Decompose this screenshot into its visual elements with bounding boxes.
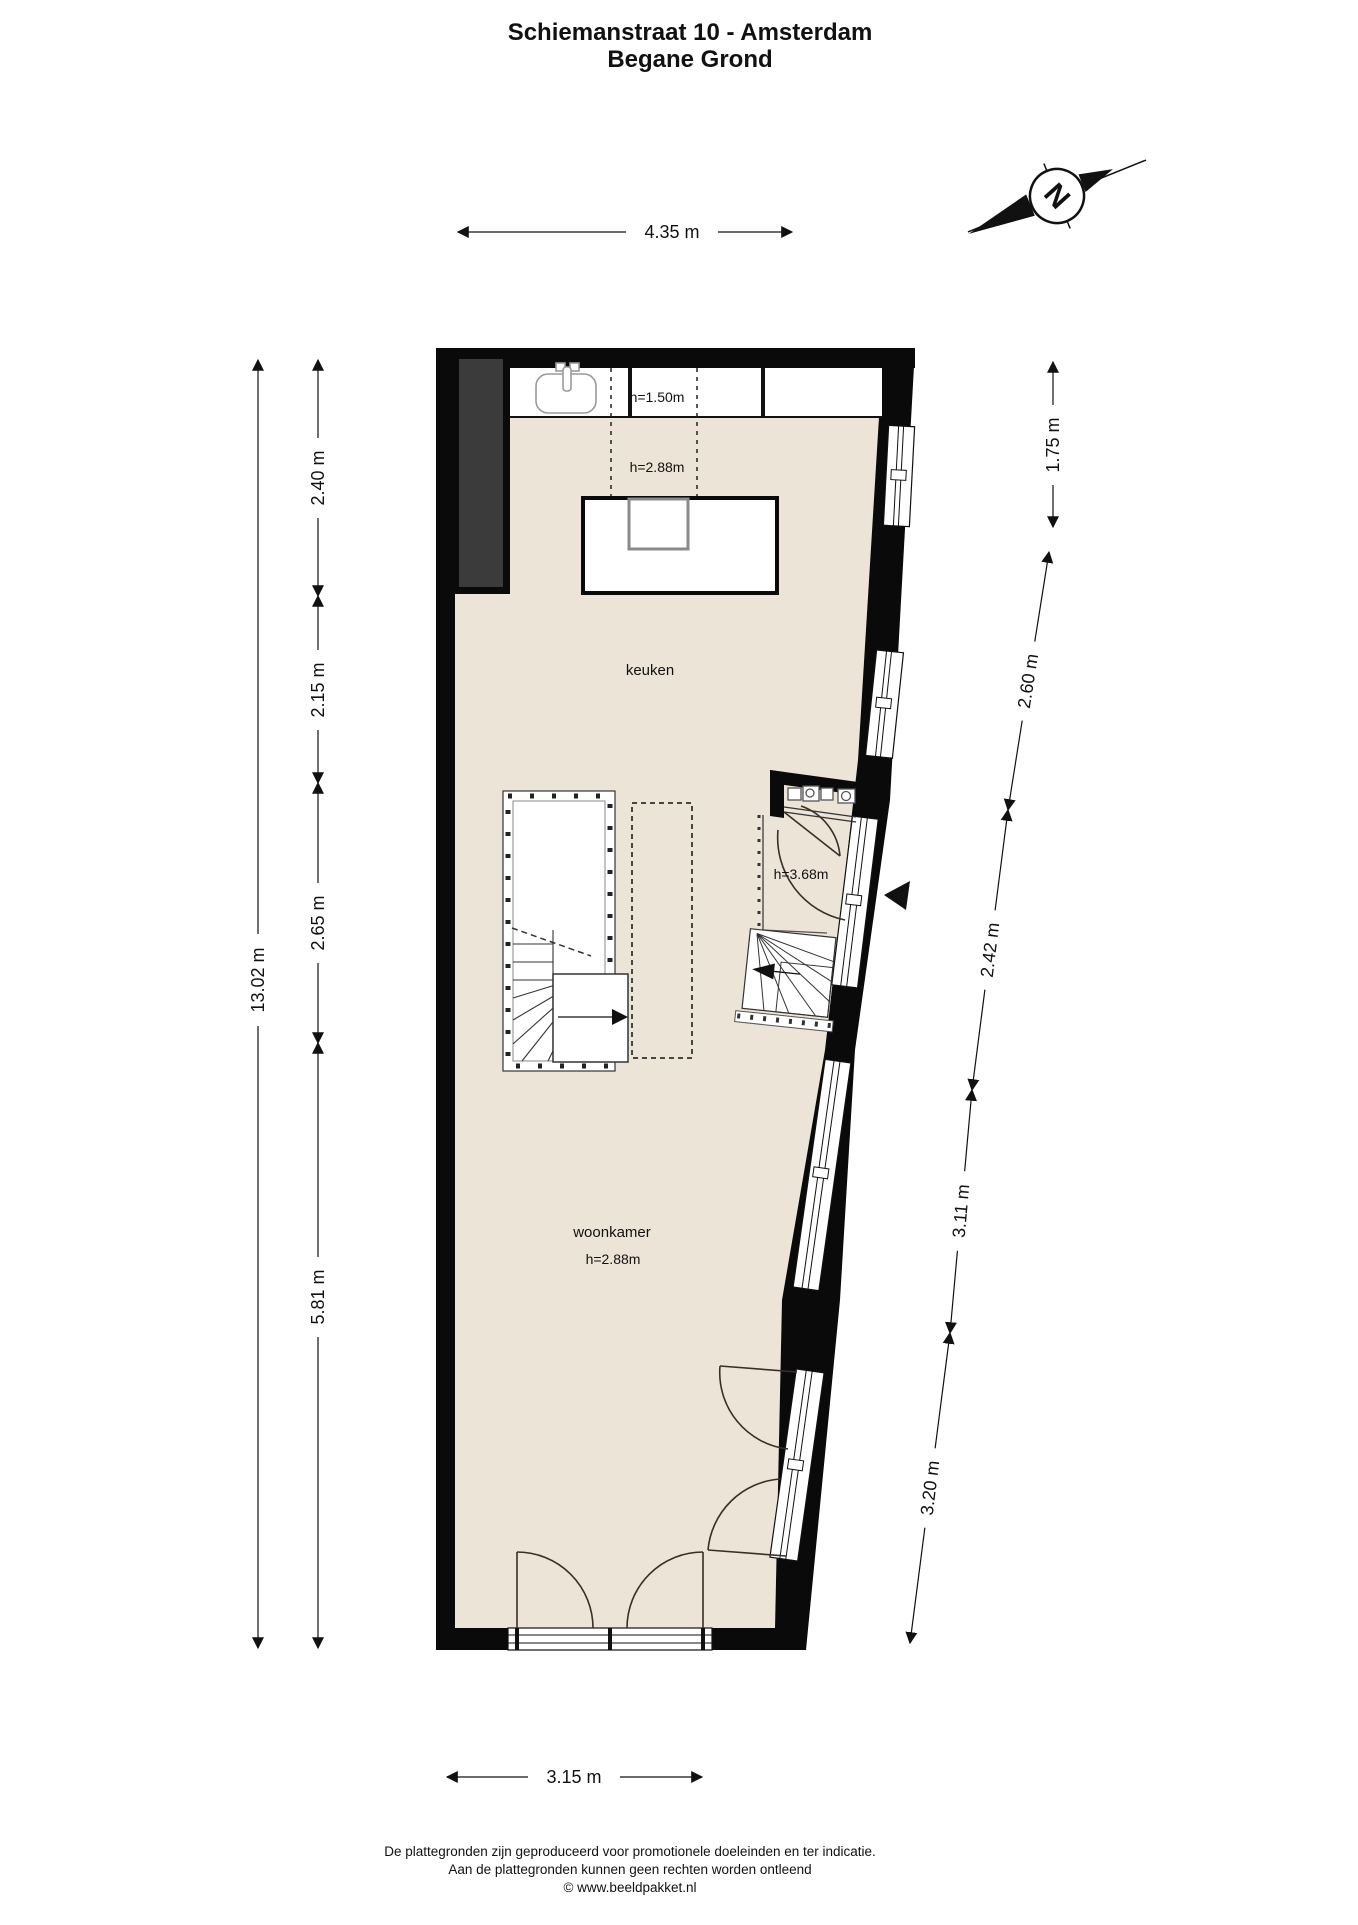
entrance-steps xyxy=(735,928,842,1032)
dim-left-3: 2.65 m xyxy=(308,895,328,950)
height-label-entree: h=3.68m xyxy=(774,866,829,882)
dim-bottom: 3.15 m xyxy=(546,1767,601,1787)
footer-disclaimer-1: De plattegronden zijn geproduceerd voor … xyxy=(384,1844,876,1859)
room-label-keuken: keuken xyxy=(626,662,674,679)
wall-entree-left xyxy=(770,770,784,818)
floorplan-page: Schiemanstraat 10 - Amsterdam Begane Gro… xyxy=(0,0,1358,1920)
island-hob xyxy=(629,499,688,549)
height-label-living: h=2.88m xyxy=(586,1251,641,1267)
dim-right-2: 2.60 m xyxy=(1014,652,1042,709)
dim-left-1: 2.40 m xyxy=(308,450,328,505)
compass-rose-icon: N xyxy=(955,128,1159,265)
page-title: Schiemanstraat 10 - Amsterdam xyxy=(508,19,873,46)
dim-left-total: 13.02 m xyxy=(248,947,268,1012)
dim-right-5: 3.20 m xyxy=(917,1459,944,1516)
chimney-block xyxy=(452,352,510,594)
height-label-counter: h=1.50m xyxy=(630,389,685,405)
window-bottom xyxy=(508,1628,712,1650)
footer-disclaimer-2: Aan de plattegronden kunnen geen rechten… xyxy=(448,1862,811,1877)
staircase xyxy=(503,791,628,1071)
dim-top: 4.35 m xyxy=(644,222,699,242)
room-label-woonkamer: woonkamer xyxy=(572,1224,651,1241)
page-subtitle: Begane Grond xyxy=(607,46,772,73)
footer-copyright: © www.beeldpakket.nl xyxy=(563,1880,696,1895)
height-label-kitchen: h=2.88m xyxy=(630,459,685,475)
entrance-arrow-icon xyxy=(884,881,910,910)
dim-left-2: 2.15 m xyxy=(308,662,328,717)
window xyxy=(883,425,914,526)
dim-right-1: 1.75 m xyxy=(1043,417,1063,472)
kitchen-counter xyxy=(510,363,882,417)
dim-left-4: 5.81 m xyxy=(308,1269,328,1324)
kitchen-island xyxy=(583,498,777,593)
meter-fixtures-icon xyxy=(788,786,855,803)
floorplan-drawing: Schiemanstraat 10 - Amsterdam Begane Gro… xyxy=(0,0,1358,1920)
dim-right-3: 2.42 m xyxy=(977,921,1004,978)
